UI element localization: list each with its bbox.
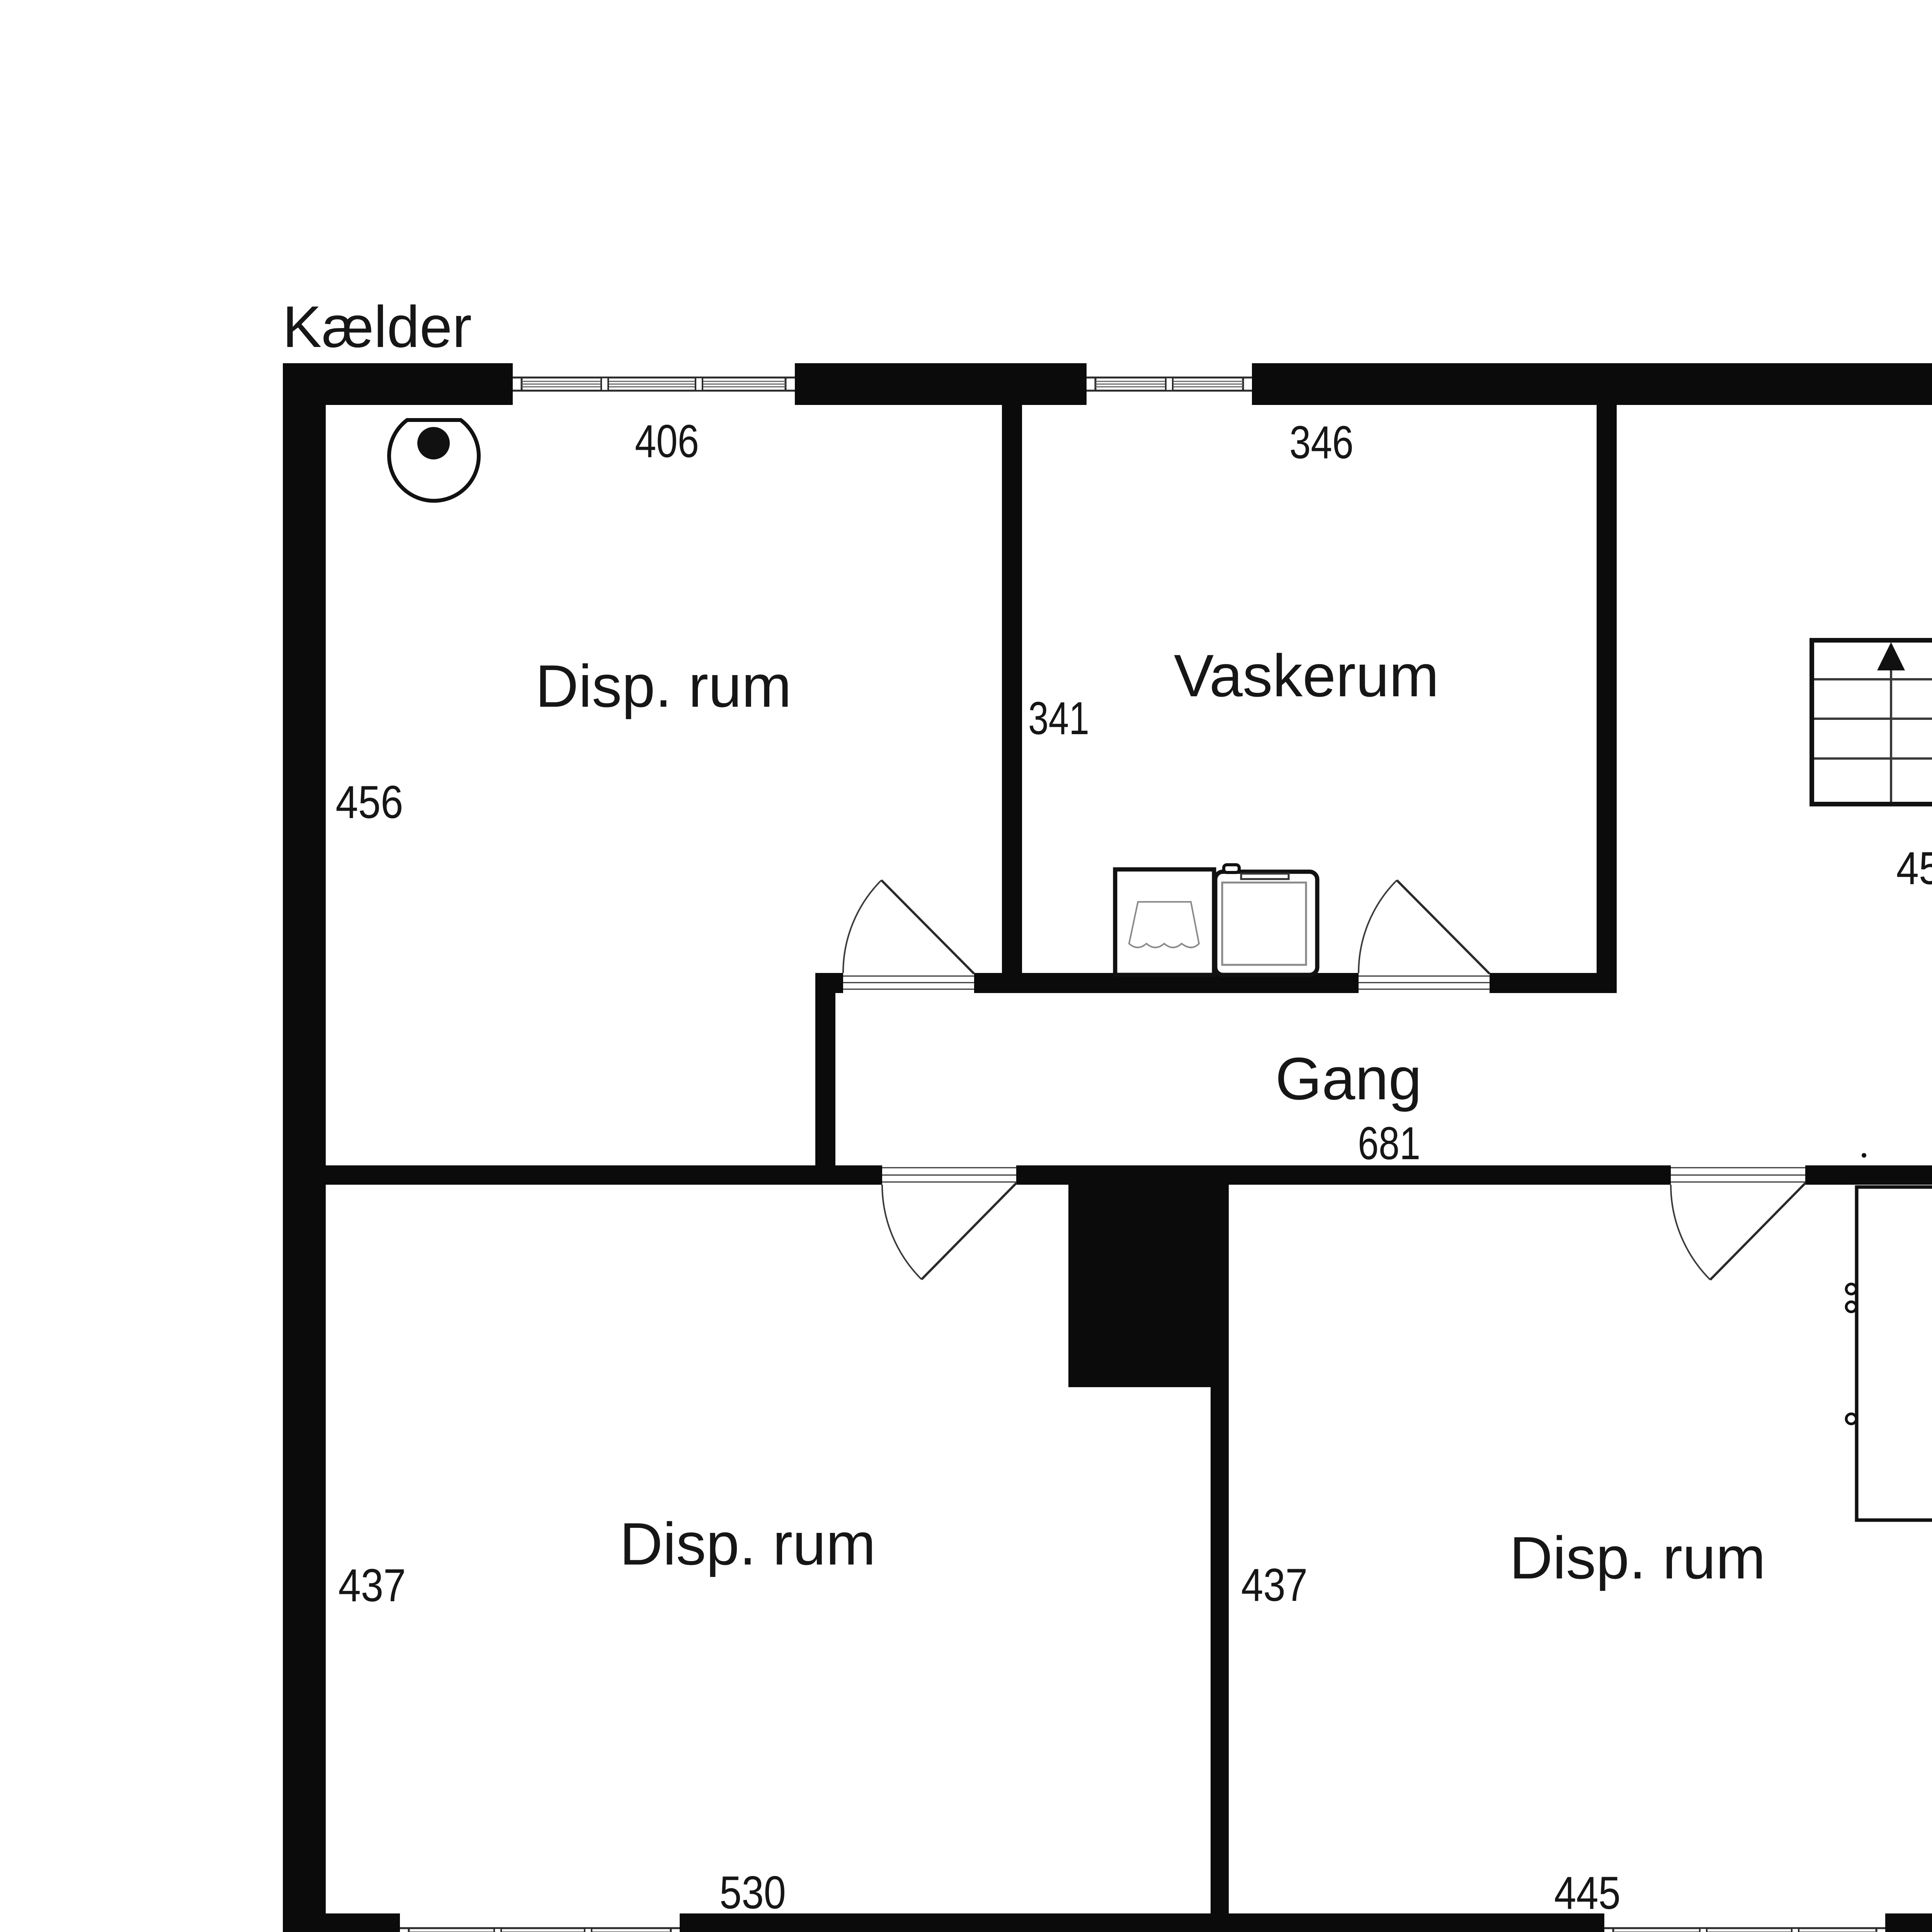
svg-text:456: 456: [336, 776, 403, 828]
svg-text:681: 681: [1358, 1117, 1420, 1169]
svg-text:Kælder: Kælder: [282, 294, 472, 360]
svg-text:437: 437: [338, 1560, 406, 1611]
svg-text:456: 456: [1896, 842, 1932, 894]
svg-text:437: 437: [1241, 1559, 1308, 1611]
svg-text:445: 445: [1554, 1867, 1621, 1919]
svg-text:Disp. rum: Disp. rum: [1509, 1524, 1765, 1591]
svg-text:Disp. rum: Disp. rum: [535, 653, 791, 719]
svg-text:530: 530: [719, 1867, 786, 1918]
svg-text:341: 341: [1028, 692, 1089, 744]
svg-text:Disp. rum: Disp. rum: [619, 1510, 876, 1577]
svg-text:406: 406: [635, 415, 699, 467]
svg-text:Gang: Gang: [1275, 1045, 1422, 1112]
svg-text:346: 346: [1289, 417, 1354, 468]
svg-text:Vaskerum: Vaskerum: [1174, 642, 1439, 709]
